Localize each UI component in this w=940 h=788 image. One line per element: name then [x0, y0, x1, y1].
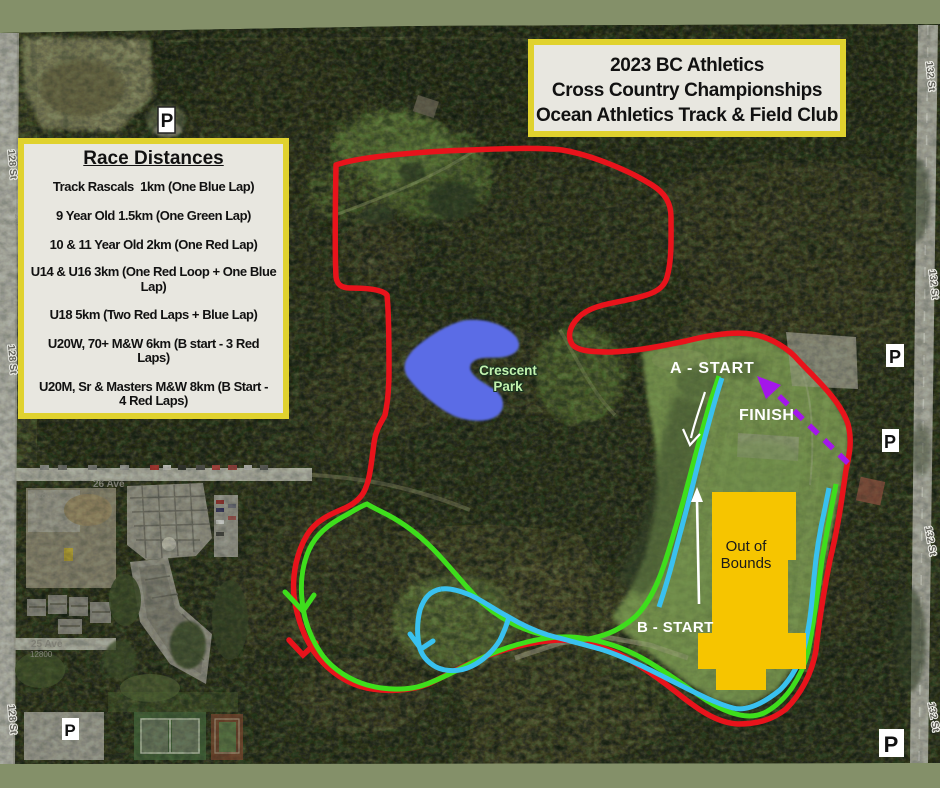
svg-text:Crescent: Crescent [479, 363, 537, 378]
svg-text:Out of: Out of [726, 538, 768, 555]
svg-text:12800: 12800 [30, 650, 53, 659]
svg-text:B - START: B - START [637, 619, 714, 636]
svg-text:Park: Park [493, 379, 523, 394]
svg-text:A - START: A - START [670, 360, 755, 377]
svg-text:25 Ave: 25 Ave [31, 639, 63, 650]
svg-text:P: P [884, 432, 896, 452]
svg-text:FINISH: FINISH [739, 407, 794, 424]
svg-text:P: P [889, 347, 901, 367]
svg-text:P: P [64, 721, 75, 740]
svg-text:26 Ave: 26 Ave [93, 479, 125, 490]
svg-text:12800: 12800 [33, 491, 56, 500]
svg-text:P: P [161, 111, 174, 132]
svg-text:P: P [884, 732, 899, 757]
svg-text:Bounds: Bounds [721, 555, 772, 572]
